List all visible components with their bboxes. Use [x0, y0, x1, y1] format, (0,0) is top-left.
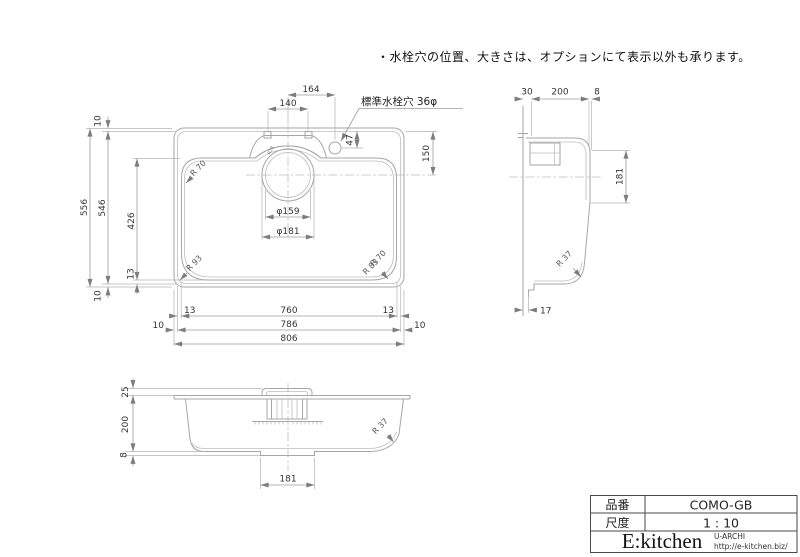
dim-10-bottom: 10	[94, 290, 104, 302]
dim-dia181: φ181	[276, 227, 299, 237]
part-no-label: 品番	[605, 498, 629, 512]
dim-47: 47	[346, 134, 356, 145]
part-no-value: COMO-GB	[690, 498, 753, 513]
front-drain-box	[252, 399, 323, 422]
scale-label: 尺度	[605, 515, 629, 530]
plan-view: R28 標準水栓穴 36φ 164 140 47 150 556	[80, 85, 463, 346]
dim-200-side: 200	[551, 88, 568, 98]
side-rim-inner	[528, 142, 586, 154]
scale-value: 1 : 10	[703, 516, 739, 531]
front-bowl-inner-line	[193, 432, 397, 449]
dim-30: 30	[521, 88, 533, 98]
radius-side-front-bottom: R 37	[555, 249, 574, 268]
side-rim-outer	[526, 138, 590, 153]
radius-leader	[186, 177, 192, 183]
front-deck-inner	[267, 392, 308, 396]
dim-10-r: 10	[414, 321, 426, 331]
dim-181-side: 181	[616, 168, 626, 185]
dim-8-front: 8	[120, 452, 130, 458]
radius-leader	[180, 273, 187, 280]
dim-140: 140	[279, 99, 296, 109]
faucet-note-label: 標準水栓穴 36φ	[361, 95, 437, 108]
brand-logo: E:kitchen	[622, 529, 703, 553]
front-drain-box-hatch	[277, 399, 297, 419]
front-bowl-outline	[186, 399, 404, 456]
dim-200-front: 200	[121, 416, 131, 433]
dim-806: 806	[280, 334, 297, 344]
technical-drawing-page: ・水栓穴の位置、大きさは、オプションにて表示以外も承ります。 R28 標準水栓穴…	[0, 0, 800, 557]
side-deck-box	[530, 143, 560, 165]
dim-546: 546	[98, 199, 108, 216]
dim-13-left: 13	[127, 268, 137, 279]
deck-tab-right	[305, 132, 312, 139]
front-deck-outer	[262, 389, 312, 396]
radius-top-left: R 70	[189, 159, 208, 178]
dim-10-top: 10	[94, 115, 104, 127]
dim-8-side: 8	[594, 88, 600, 98]
dim-556: 556	[80, 199, 90, 216]
dim-786: 786	[280, 320, 297, 330]
dim-17: 17	[540, 307, 551, 317]
faucet-hole	[329, 142, 341, 154]
side-profile	[529, 152, 591, 297]
dim-426: 426	[127, 212, 137, 229]
radius-front-bottom-right: R 37	[371, 417, 390, 436]
dim-25: 25	[121, 386, 131, 397]
title-block: 品番 COMO-GB 尺度 1 : 10 E:kitchen U-ARCHI h…	[591, 496, 798, 554]
deck-tab-left	[264, 132, 271, 139]
radius-bottom-left: R 93	[185, 254, 204, 273]
dim-dia159: φ159	[276, 207, 299, 217]
brand-sub: U-ARCHI	[714, 532, 745, 541]
dim-150: 150	[422, 145, 432, 162]
dim-10-l: 10	[153, 321, 165, 331]
dim-13-br: 13	[383, 306, 394, 316]
sink-drawing-canvas: ・水栓穴の位置、大きさは、オプションにて表示以外も承ります。 R28 標準水栓穴…	[0, 0, 800, 557]
option-note: ・水栓穴の位置、大きさは、オプションにて表示以外も承ります。	[377, 49, 751, 64]
brand-url: http://e-kitchen.biz/	[714, 542, 788, 551]
dim-13-bl: 13	[184, 306, 195, 316]
front-view: R 37 181 25 200 8	[120, 379, 411, 490]
dim-760: 760	[280, 306, 297, 316]
deck-radius-label: R28	[266, 145, 276, 156]
dim-181-front: 181	[279, 475, 296, 485]
side-view: 30 200 8 181 R 37 17	[509, 88, 630, 317]
dim-164: 164	[302, 85, 319, 95]
